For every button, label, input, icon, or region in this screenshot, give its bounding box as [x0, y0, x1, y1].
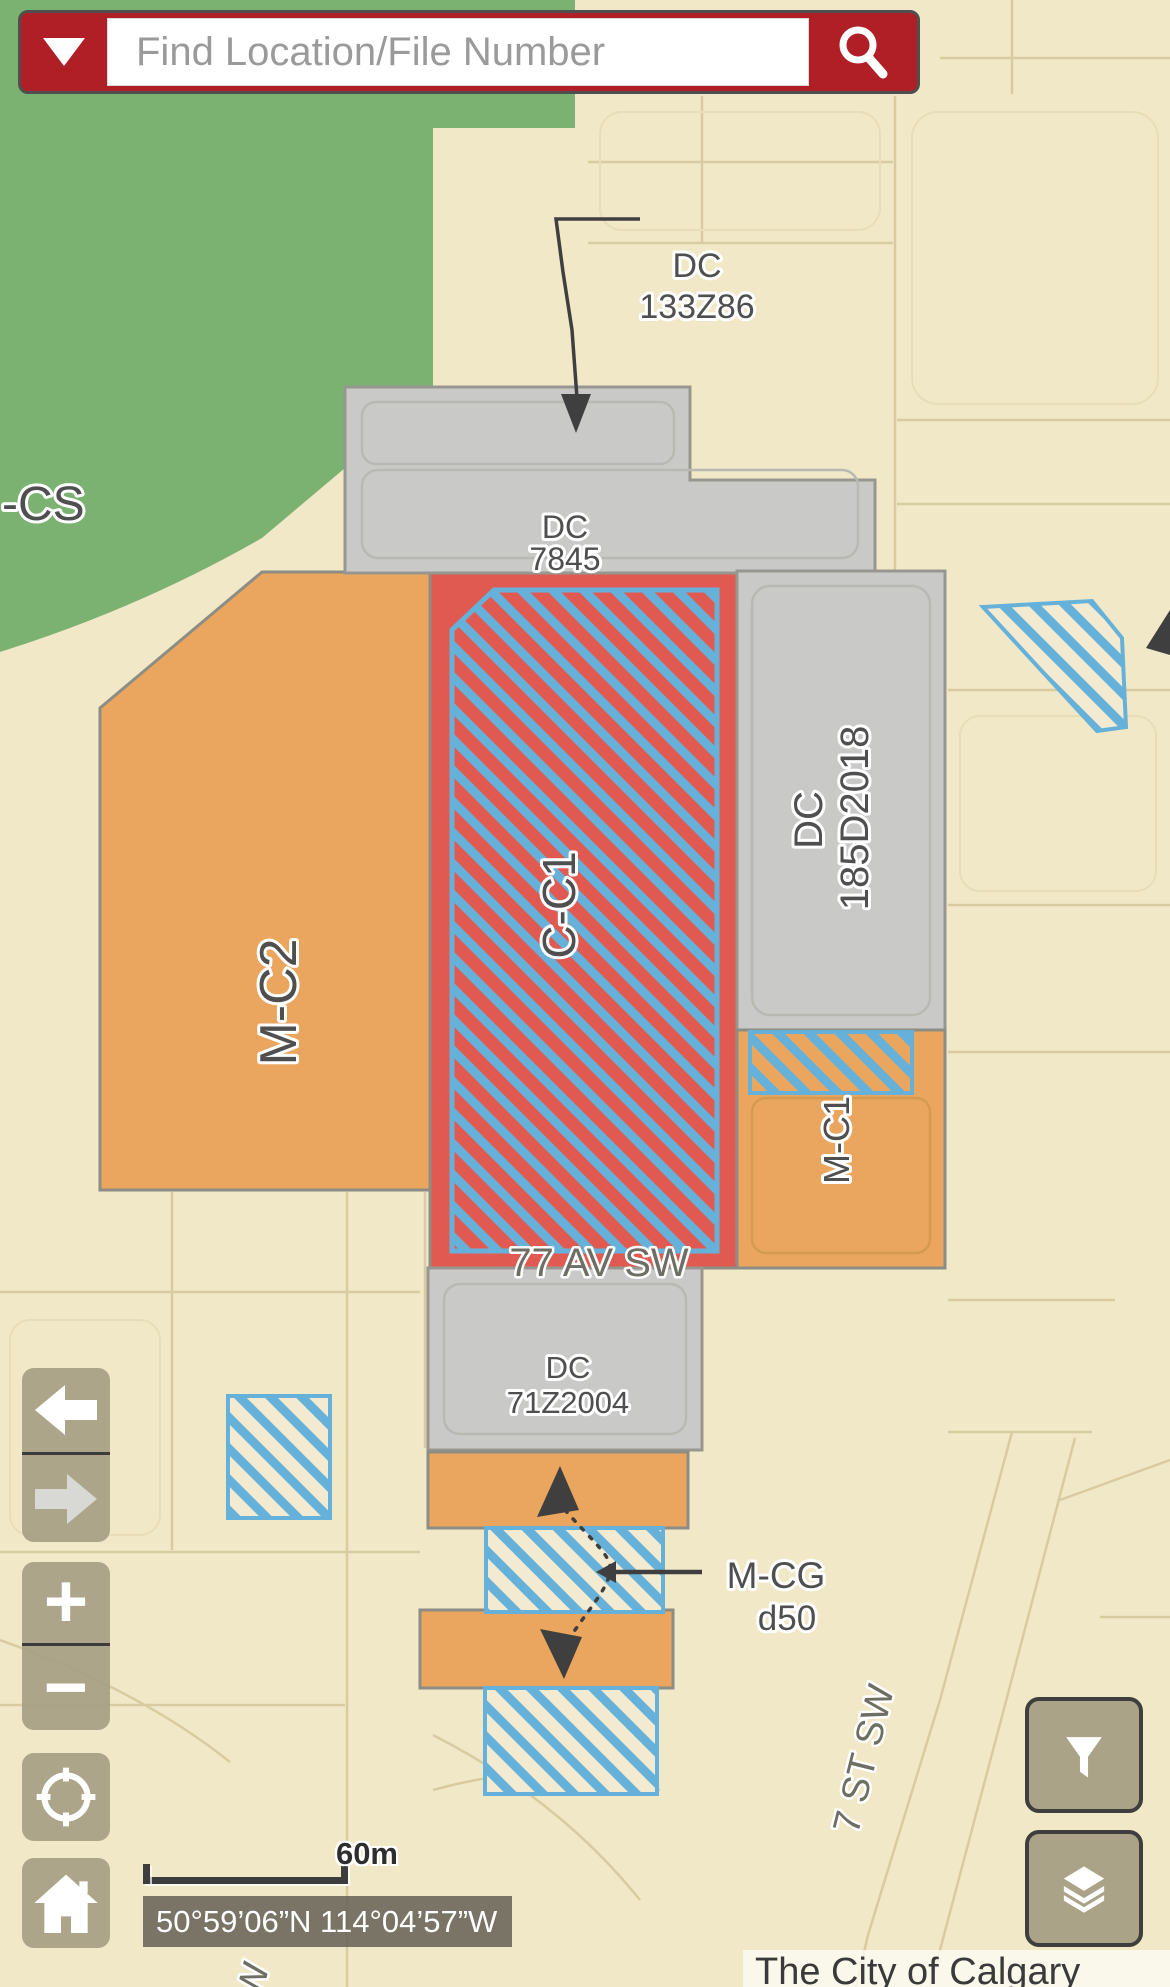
label-dc-7845-line1: DC: [542, 509, 588, 545]
layers-button[interactable]: [1025, 1830, 1143, 1947]
zoom-out-button[interactable]: −: [22, 1646, 110, 1730]
back-button[interactable]: [22, 1368, 110, 1455]
label-77-av-sw: 77 AV SW: [509, 1241, 689, 1285]
scale-bar: [143, 1877, 348, 1884]
label-dc-133z86-line2: 133Z86: [639, 288, 754, 326]
home-button[interactable]: [22, 1858, 110, 1948]
zoom-control-group: + −: [22, 1562, 110, 1730]
history-nav-group: [22, 1368, 110, 1542]
search-bar: [18, 10, 920, 94]
hatch-parcel-m-cg-south[interactable]: [485, 1688, 657, 1794]
label-dc-71z2004-line1: DC: [546, 1350, 591, 1385]
search-button[interactable]: [809, 13, 917, 91]
label-dc-71z2004-line2: 71Z2004: [507, 1385, 629, 1420]
label-dc-133z86-line1: DC: [672, 247, 721, 285]
hatch-m-c1-overlay[interactable]: [750, 1032, 912, 1093]
map-canvas[interactable]: -CS DC 133Z86 DC 7845 C-C1 DC 185D2018 M…: [0, 0, 1170, 1987]
forward-button[interactable]: [22, 1455, 110, 1542]
plus-icon: +: [44, 1568, 88, 1636]
locate-button[interactable]: [22, 1753, 110, 1841]
hatch-parcel-small-west[interactable]: [228, 1396, 330, 1518]
search-input[interactable]: [108, 30, 808, 75]
forward-arrow-icon: [31, 1472, 101, 1526]
home-icon: [29, 1868, 103, 1938]
label-r-cs: -CS: [2, 478, 85, 531]
scale-label: 60m: [268, 1836, 398, 1872]
label-c-c1: C-C1: [533, 851, 585, 958]
zoning-map[interactable]: -CS DC 133Z86 DC 7845 C-C1 DC 185D2018 M…: [0, 0, 1170, 1987]
coordinates-readout: 50°59’06”N 114°04’57”W: [143, 1896, 512, 1947]
label-m-c1: M-C1: [816, 1096, 857, 1184]
minus-icon: −: [44, 1654, 88, 1722]
filter-button[interactable]: [1025, 1697, 1143, 1813]
zone-orange-strip-south[interactable]: [420, 1610, 673, 1688]
scale-bar-left-tick: [143, 1864, 150, 1884]
back-arrow-icon: [31, 1383, 101, 1437]
search-field: [107, 18, 809, 86]
label-dc-7845-line2: 7845: [529, 541, 600, 577]
label-d50: d50: [758, 1599, 816, 1638]
label-m-c2: M-C2: [250, 938, 308, 1065]
zoom-in-button[interactable]: +: [22, 1562, 110, 1646]
attribution: The City of Calgary: [743, 1950, 1170, 1987]
caret-down-icon: [43, 38, 85, 66]
search-icon: [831, 20, 895, 84]
label-dc-185d2018-line2: 185D2018: [833, 726, 877, 911]
locate-reticle-icon: [28, 1759, 104, 1835]
layers-icon: [1048, 1851, 1120, 1927]
search-dropdown-button[interactable]: [21, 13, 107, 91]
filter-funnel-icon: [1050, 1721, 1118, 1789]
zone-m-c2[interactable]: [100, 572, 430, 1190]
label-m-cg: M-CG: [727, 1555, 826, 1596]
label-dc-185d2018-line1: DC: [787, 791, 831, 849]
